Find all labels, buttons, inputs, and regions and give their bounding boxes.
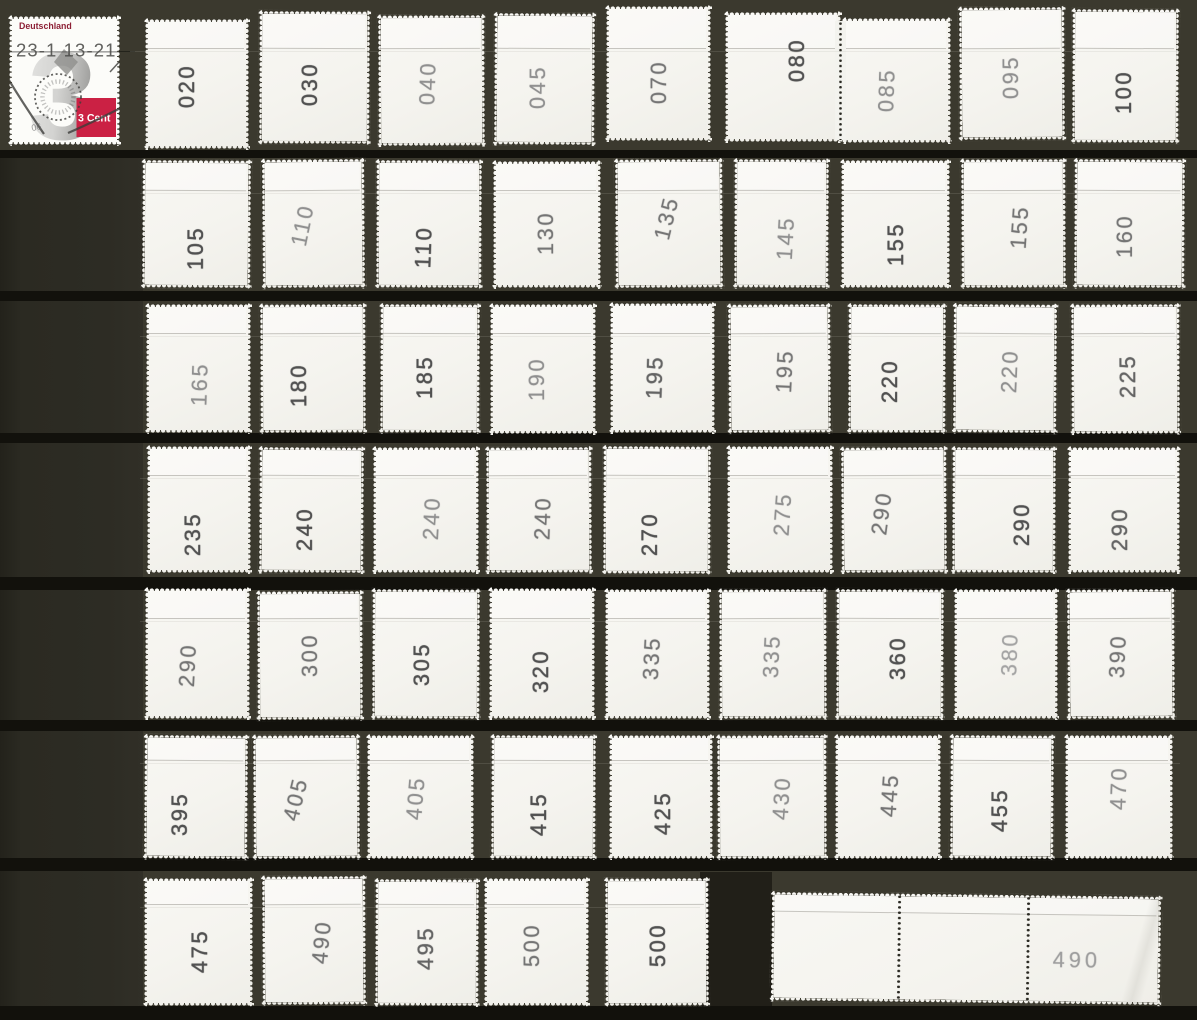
- svg-text:06: 06: [31, 121, 43, 133]
- svg-text:Deutschland: Deutschland: [19, 21, 72, 31]
- svg-text:23-1 13-21: 23-1 13-21: [16, 40, 116, 61]
